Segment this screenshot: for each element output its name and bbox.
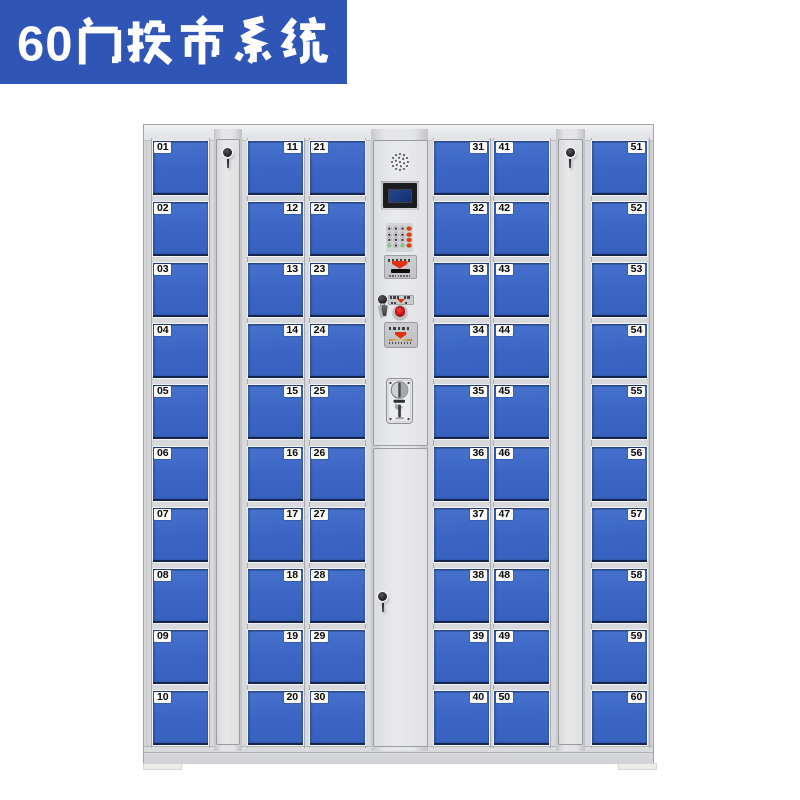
svg-text:60: 60 <box>17 18 74 72</box>
